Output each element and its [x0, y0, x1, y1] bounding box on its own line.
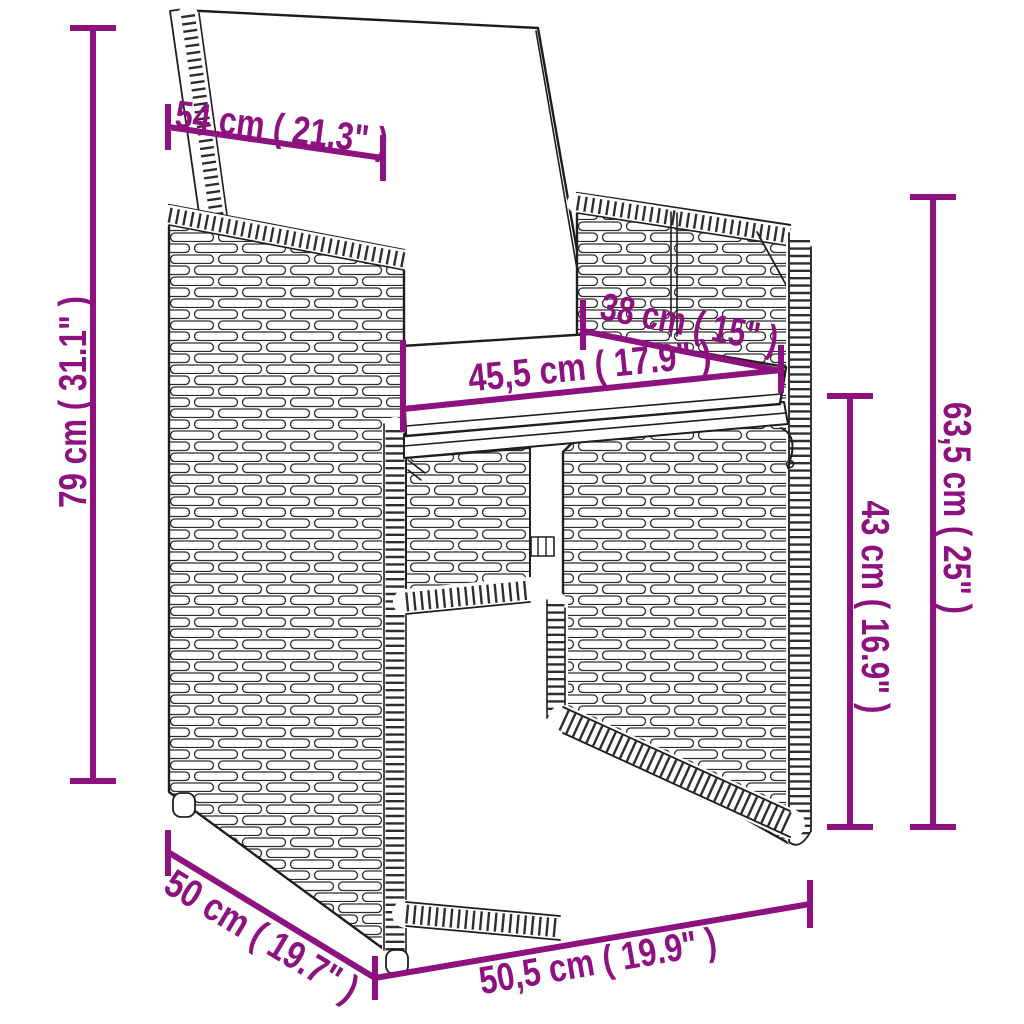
- left-side-panel: [169, 205, 408, 974]
- dimension-diagram: 54 cm ( 21.3" ) 79 cm ( 31.1" ) 38 cm ( …: [0, 0, 1024, 1024]
- chair-illustration: [169, 9, 811, 974]
- front-stretcher: [406, 902, 560, 940]
- dimension-label-total-height: 79 cm ( 31.1" ): [52, 296, 95, 508]
- dimension-seat-height: 43 cm ( 16.9" ): [827, 396, 896, 827]
- right-side-panel: [547, 193, 811, 845]
- diagram-canvas: 54 cm ( 21.3" ) 79 cm ( 31.1" ) 38 cm ( …: [0, 0, 1024, 1024]
- dimension-total-height: 79 cm ( 31.1" ): [52, 28, 116, 781]
- dimension-base-width: 50,5 cm ( 19.9" ): [375, 880, 810, 1003]
- left-back-foot: [173, 793, 195, 817]
- dimension-label-seat-height: 43 cm ( 16.9" ): [853, 501, 896, 714]
- dimension-armrest-height: 63,5 cm ( 25" ): [910, 197, 978, 827]
- dimension-label-armrest-height: 63,5 cm ( 25" ): [935, 402, 978, 614]
- under-seat-apron: [406, 448, 554, 614]
